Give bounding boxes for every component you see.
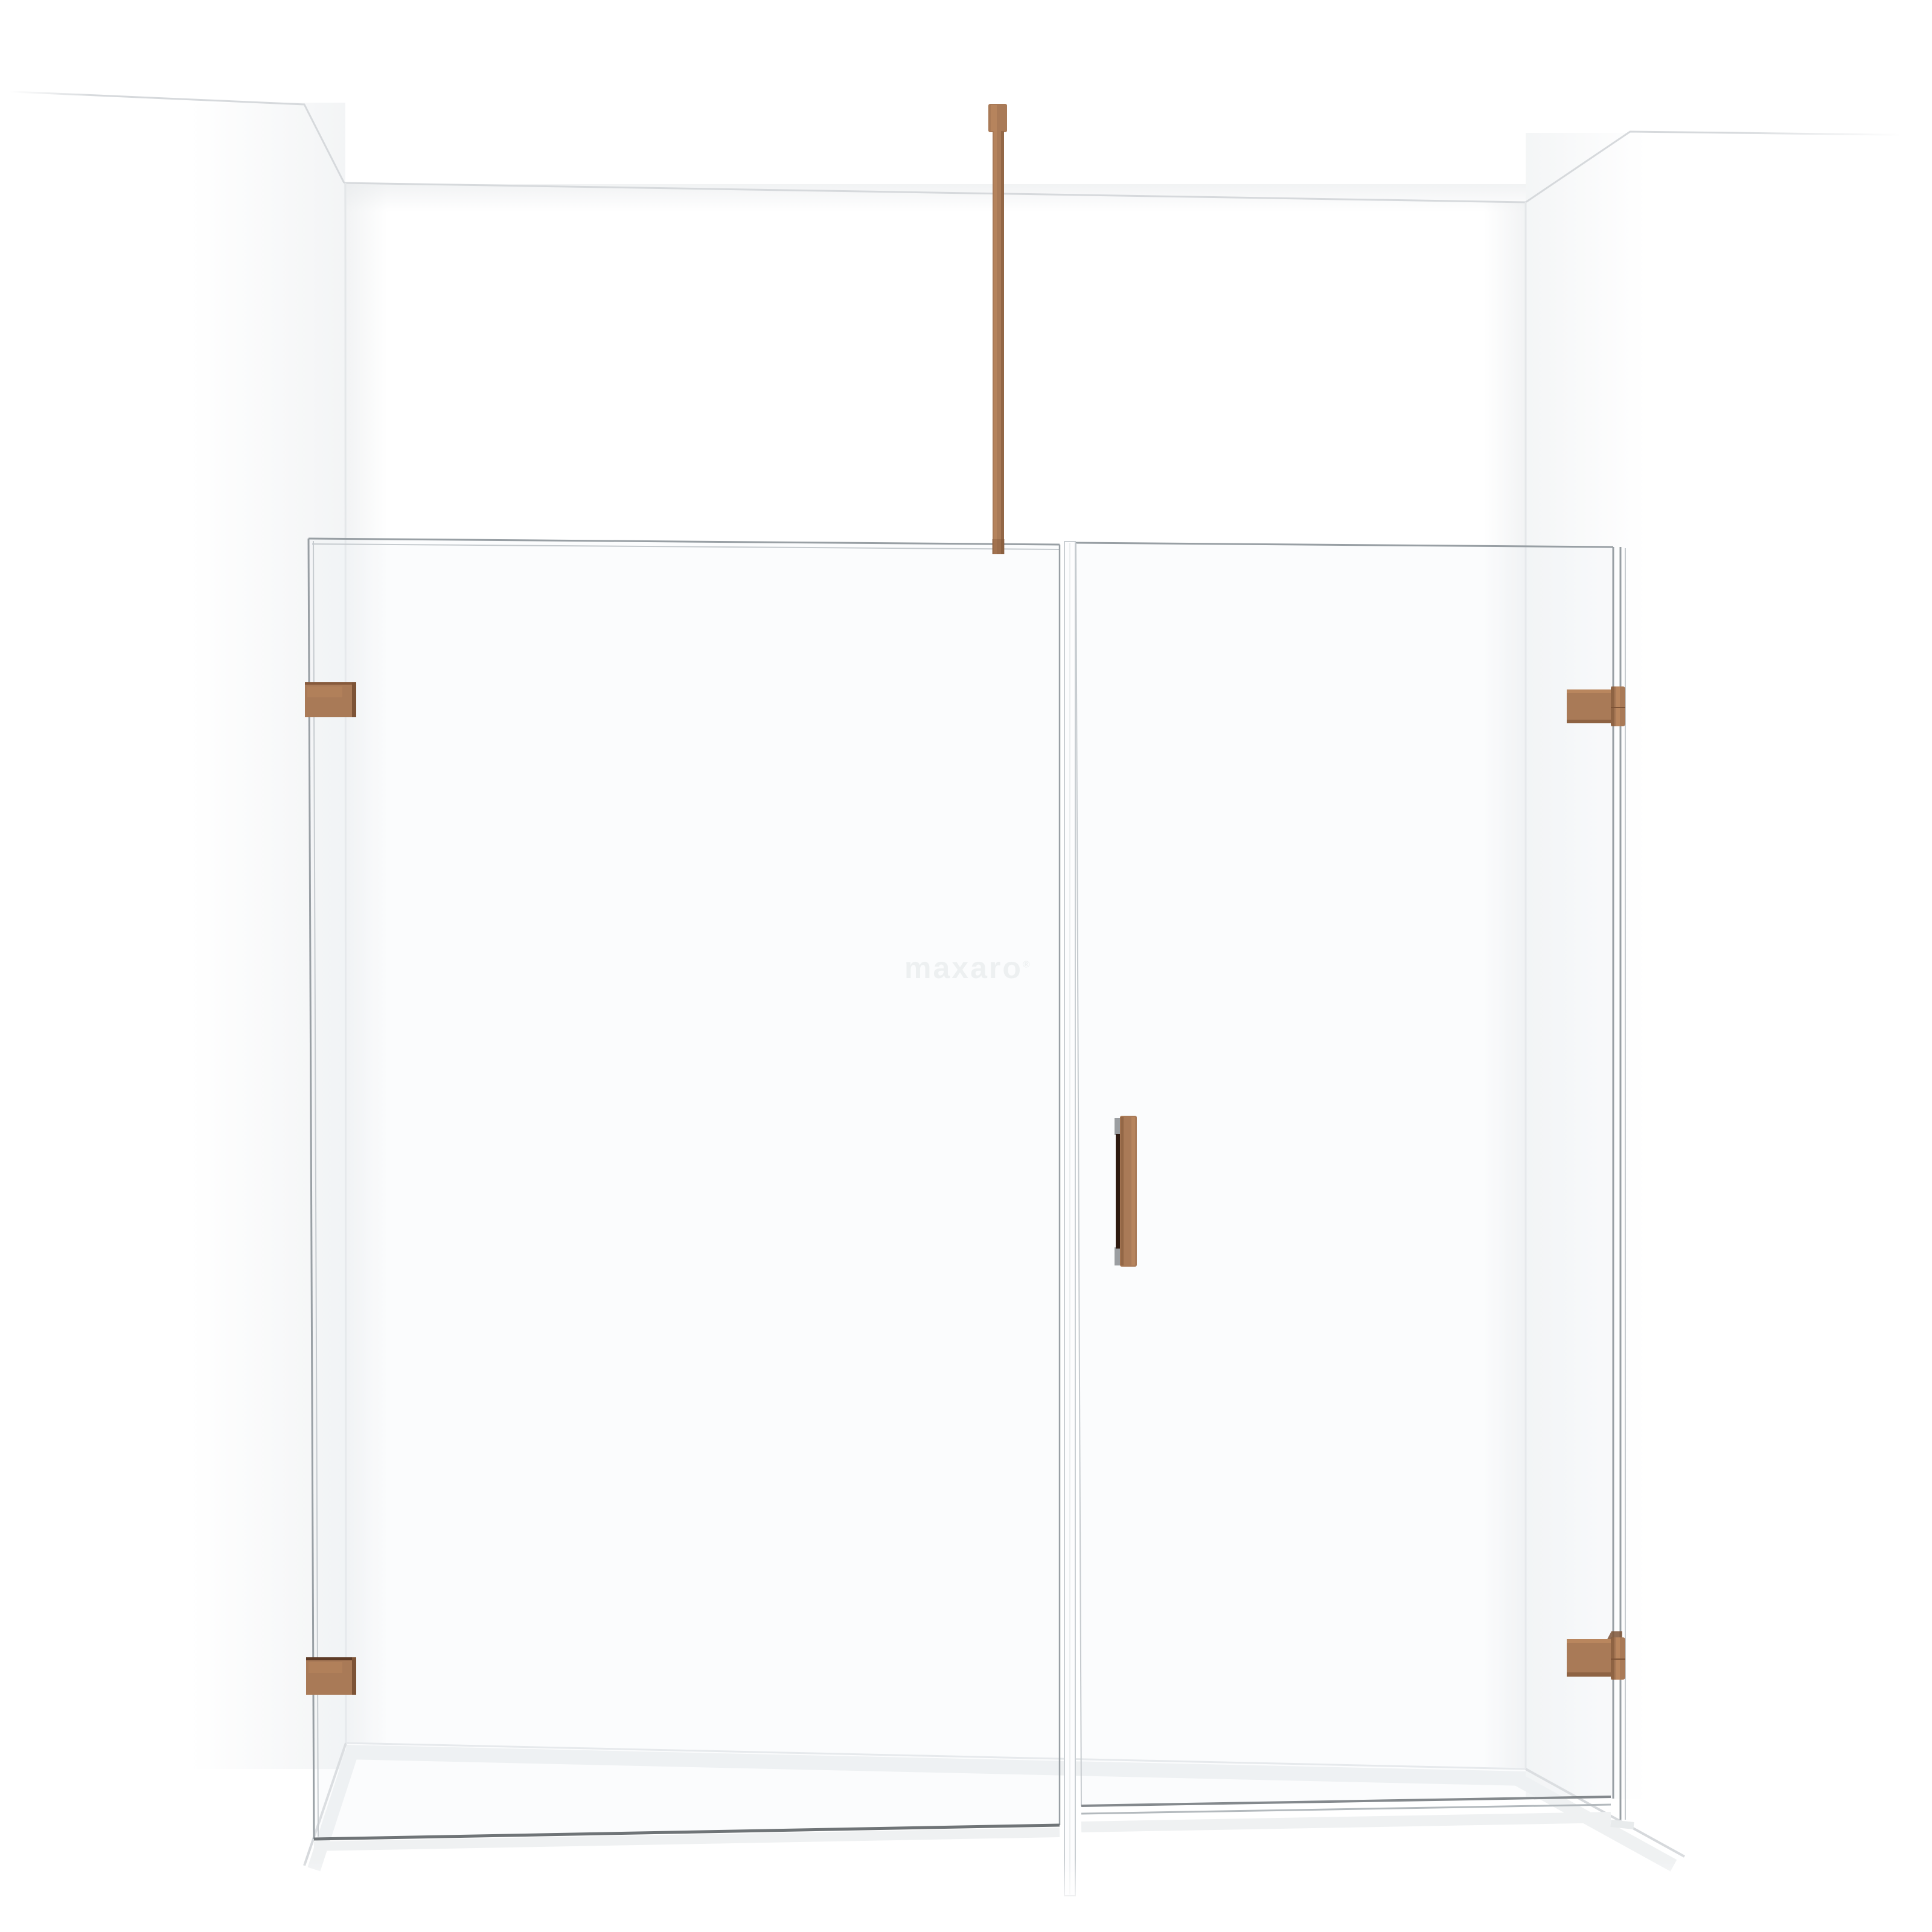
bracket-top-shade bbox=[306, 1657, 356, 1660]
bracket-highlight bbox=[307, 686, 342, 697]
door-glass-surface bbox=[1076, 543, 1613, 1806]
door-sill-line bbox=[1081, 1805, 1611, 1814]
wall-bracket-top-left bbox=[305, 682, 356, 717]
ceiling-support-bar bbox=[988, 104, 1007, 554]
handle-end-cap-bottom bbox=[1115, 1247, 1121, 1265]
right-ceiling-fade bbox=[1727, 112, 1932, 160]
handle-bar-highlight bbox=[1131, 1117, 1135, 1265]
wall-bracket-bottom-left bbox=[306, 1657, 356, 1695]
fixed-panel-glass-surface bbox=[309, 539, 1060, 1839]
left-ceiling-fade bbox=[0, 72, 97, 115]
handle-grip-recess bbox=[1116, 1134, 1121, 1249]
back-wall-top-edge bbox=[344, 183, 1526, 202]
registered-trademark-icon: ® bbox=[1023, 959, 1032, 970]
hinge-knuckle-highlight bbox=[1616, 686, 1620, 726]
right-floor-fade bbox=[1666, 1787, 1932, 1908]
bracket-top-shade bbox=[305, 682, 356, 685]
door-floor-shadow bbox=[1081, 1817, 1611, 1827]
hinge-plate bbox=[1567, 1639, 1612, 1677]
hinge-plate bbox=[1567, 689, 1612, 723]
hinge-plate-highlight bbox=[1567, 689, 1612, 693]
bracket-side-shade bbox=[352, 682, 356, 717]
bottom-fade bbox=[0, 1858, 1932, 1932]
shower-enclosure-product-render: maxaro® bbox=[0, 0, 1932, 1932]
handle-end-cap-top bbox=[1115, 1118, 1121, 1135]
ceiling-cap-highlight bbox=[991, 105, 997, 131]
junction-profile bbox=[1064, 542, 1075, 1896]
hinge-plate-shade bbox=[1567, 1672, 1612, 1677]
support-bar-shade bbox=[1001, 131, 1004, 554]
door-handle bbox=[1115, 1116, 1137, 1267]
door-hinge-top bbox=[1567, 686, 1625, 726]
handle-bar-shade bbox=[1121, 1117, 1124, 1265]
support-bar-highlight bbox=[994, 131, 997, 554]
support-bar-glass-clamp bbox=[992, 539, 1005, 554]
door-glass-panel bbox=[1076, 543, 1613, 1827]
hinge-knuckle-shade bbox=[1611, 686, 1614, 726]
maxaro-watermark: maxaro® bbox=[904, 950, 1032, 985]
side-panel-floor-shadow bbox=[1611, 1823, 1634, 1826]
fixed-glass-panel bbox=[309, 539, 1060, 1846]
hinge-plate-shade bbox=[1567, 720, 1612, 723]
bracket-highlight bbox=[309, 1662, 342, 1673]
watermark-text: maxaro bbox=[904, 951, 1023, 985]
bracket-side-shade bbox=[352, 1657, 356, 1695]
hinge-plate-highlight bbox=[1567, 1639, 1612, 1643]
